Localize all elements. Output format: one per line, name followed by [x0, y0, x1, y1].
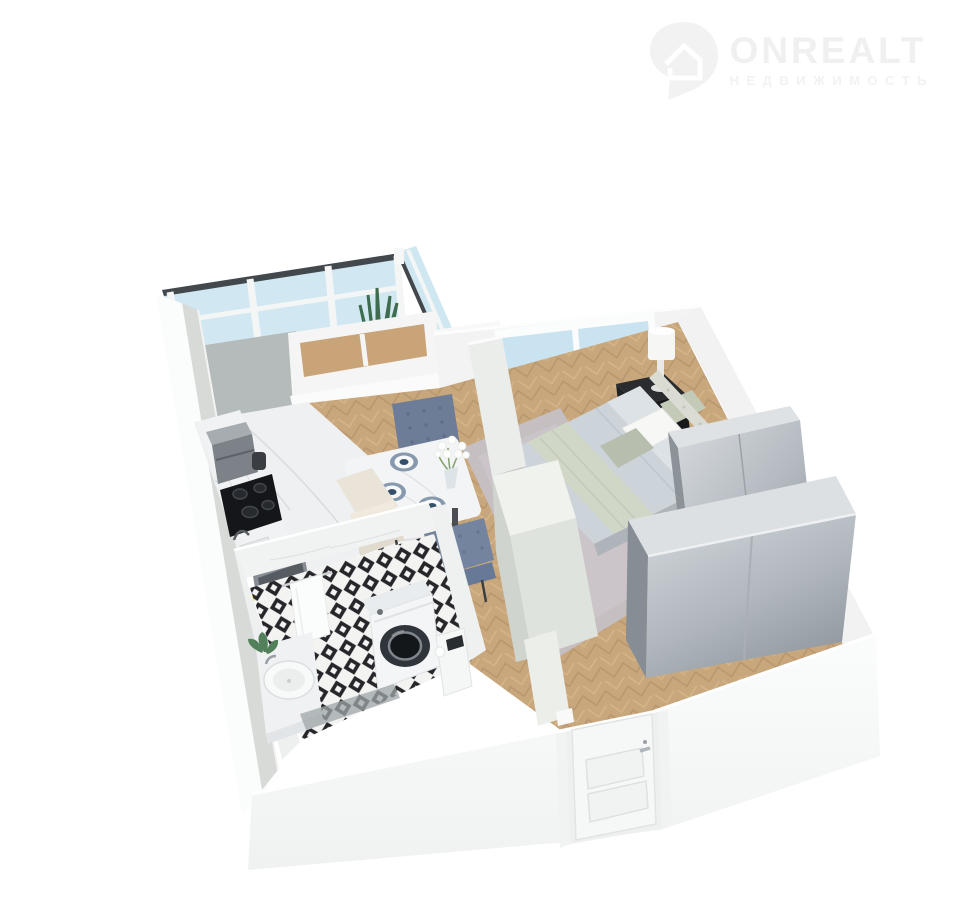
logo-text: ONREALT НЕДВИЖИМОСТЬ — [730, 32, 934, 88]
washer-dial — [377, 609, 383, 615]
door-lock — [643, 740, 647, 744]
onrealt-logo: ONREALT НЕДВИЖИМОСТЬ — [638, 18, 934, 102]
logo-brand: ONREALT — [730, 32, 927, 69]
logo-tagline: НЕДВИЖИМОСТЬ — [730, 73, 934, 88]
floor-plan-render: ONREALT НЕДВИЖИМОСТЬ — [0, 0, 960, 910]
balcony-corner-post — [394, 248, 404, 264]
entrance-door — [572, 714, 656, 840]
pin-shape — [650, 22, 718, 100]
kettle — [252, 452, 266, 470]
house-location-pin-icon — [638, 18, 722, 102]
apartment-3d-plan — [0, 0, 960, 910]
place-setting-1 — [390, 453, 418, 472]
bathroom — [234, 502, 486, 760]
toilet-paper-roll — [435, 647, 445, 657]
